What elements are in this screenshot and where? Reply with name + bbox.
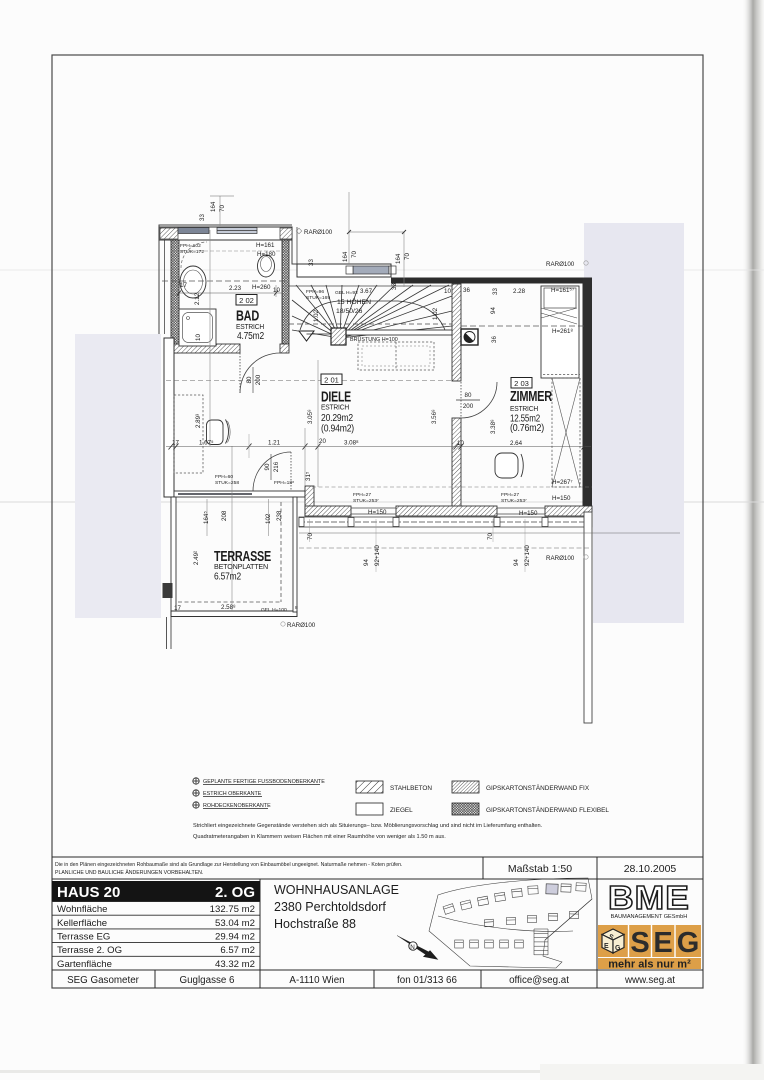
svg-text:www.seg.at: www.seg.at xyxy=(624,975,675,986)
svg-text:102: 102 xyxy=(265,513,272,524)
svg-text:H=150: H=150 xyxy=(519,510,538,517)
svg-text:94: 94 xyxy=(363,559,370,566)
svg-text:fon 01/313 66: fon 01/313 66 xyxy=(397,975,457,986)
svg-text:2.12: 2.12 xyxy=(194,292,201,305)
svg-text:164: 164 xyxy=(395,253,402,264)
svg-text:(0.76m2): (0.76m2) xyxy=(510,423,544,434)
svg-text:H=150: H=150 xyxy=(552,495,571,502)
svg-text:RARØ100: RARØ100 xyxy=(287,622,316,629)
svg-text:3.38⁸: 3.38⁸ xyxy=(490,419,497,434)
svg-text:ESTRICH: ESTRICH xyxy=(236,322,264,331)
svg-text:90: 90 xyxy=(264,463,271,470)
svg-text:ZIMMER: ZIMMER xyxy=(510,389,553,405)
svg-text:94: 94 xyxy=(513,559,520,566)
svg-text:8: 8 xyxy=(295,605,298,611)
svg-text:H=150: H=150 xyxy=(368,509,387,516)
svg-text:2.89³: 2.89³ xyxy=(195,414,202,428)
svg-text:200: 200 xyxy=(255,374,262,385)
svg-text:70: 70 xyxy=(307,533,314,540)
svg-text:FPH=102: FPH=102 xyxy=(180,243,201,249)
svg-text:29.94 m2: 29.94 m2 xyxy=(215,932,255,943)
svg-text:H=161: H=161 xyxy=(256,242,275,249)
svg-text:ROHDECKENOBERKANTE: ROHDECKENOBERKANTE xyxy=(203,803,271,809)
svg-text:92+140: 92+140 xyxy=(524,545,531,566)
svg-text:Strichliert eingezeichnete Geg: Strichliert eingezeichnete Gegenstände v… xyxy=(193,823,543,829)
svg-text:1.02: 1.02 xyxy=(432,307,439,320)
svg-text:70: 70 xyxy=(487,533,494,540)
svg-text:S: S xyxy=(630,927,649,959)
svg-text:Hochstraße 88: Hochstraße 88 xyxy=(274,917,356,931)
svg-text:STUK=253⁷: STUK=253⁷ xyxy=(353,498,379,504)
svg-text:17: 17 xyxy=(172,440,179,447)
svg-text:H=261⁸: H=261⁸ xyxy=(552,328,573,335)
svg-text:ESTRICH OBERKANTE: ESTRICH OBERKANTE xyxy=(203,791,262,797)
svg-text:164: 164 xyxy=(342,251,349,262)
svg-text:1.02: 1.02 xyxy=(313,309,320,322)
svg-text:20.29m2: 20.29m2 xyxy=(321,413,354,424)
svg-text:ZIEGEL: ZIEGEL xyxy=(390,807,413,814)
svg-text:2.23: 2.23 xyxy=(229,285,242,292)
svg-text:Maßstab 1:50: Maßstab 1:50 xyxy=(508,863,572,875)
svg-text:FPH=27: FPH=27 xyxy=(353,492,371,498)
svg-text:H=180: H=180 xyxy=(257,251,276,258)
svg-text:WOHNHAUSANLAGE: WOHNHAUSANLAGE xyxy=(274,883,399,897)
svg-text:10: 10 xyxy=(457,440,464,447)
svg-text:GEL.H=100: GEL.H=100 xyxy=(261,607,287,613)
svg-text:GIPSKARTONSTÄNDERWAND FLEXIBE: GIPSKARTONSTÄNDERWAND FLEXIBEL xyxy=(486,806,609,814)
svg-text:1.67⁵: 1.67⁵ xyxy=(199,440,214,447)
svg-text:Die in den Plänen eingezeichne: Die in den Plänen eingezeichneten Rohbau… xyxy=(55,862,403,868)
svg-text:RARØ100: RARØ100 xyxy=(546,555,575,562)
svg-text:E: E xyxy=(653,927,672,959)
svg-text:92+140: 92+140 xyxy=(374,545,381,566)
svg-text:RARØ100: RARØ100 xyxy=(546,261,575,268)
svg-text:3.05⁸: 3.05⁸ xyxy=(307,409,314,424)
svg-text:A-1110 Wien: A-1110 Wien xyxy=(289,975,344,986)
svg-text:17: 17 xyxy=(174,605,181,612)
svg-text:2380 Perchtoldsdorf: 2380 Perchtoldsdorf xyxy=(274,900,386,914)
svg-text:GEL H=92: GEL H=92 xyxy=(335,290,358,296)
svg-text:STUK=258: STUK=258 xyxy=(215,480,239,486)
svg-text:2.64: 2.64 xyxy=(510,440,523,447)
svg-text:BAUMANAGEMENT GESmbH: BAUMANAGEMENT GESmbH xyxy=(611,914,688,920)
svg-text:H=260: H=260 xyxy=(252,284,271,291)
svg-text:Terrasse 2. OG: Terrasse 2. OG xyxy=(57,945,122,956)
svg-text:FPH=96: FPH=96 xyxy=(306,289,324,295)
svg-text:ESTRICH: ESTRICH xyxy=(321,403,349,412)
svg-text:33: 33 xyxy=(308,259,315,266)
svg-text:1.21: 1.21 xyxy=(268,440,281,447)
svg-text:G: G xyxy=(615,945,621,952)
svg-text:3.08⁸: 3.08⁸ xyxy=(344,440,359,447)
svg-text:FPH=18⁸: FPH=18⁸ xyxy=(274,480,294,486)
svg-text:Quadratmeterangaben in Klammer: Quadratmeterangaben in Klammern weisen F… xyxy=(193,834,446,840)
svg-text:17: 17 xyxy=(180,282,187,289)
svg-text:10: 10 xyxy=(195,334,202,341)
svg-text:3.56⁸: 3.56⁸ xyxy=(431,409,438,424)
svg-text:70: 70 xyxy=(219,205,226,212)
svg-text:2. OG: 2. OG xyxy=(215,884,255,901)
svg-text:6.57 m2: 6.57 m2 xyxy=(220,945,255,956)
svg-text:mehr als nur m²: mehr als nur m² xyxy=(608,959,691,971)
svg-text:200: 200 xyxy=(463,403,474,410)
svg-text:Wohnfläche: Wohnfläche xyxy=(57,904,108,915)
svg-text:80: 80 xyxy=(246,376,253,383)
svg-text:Gartenfläche: Gartenfläche xyxy=(57,959,112,970)
svg-text:N: N xyxy=(410,944,415,951)
svg-text:6.57m2: 6.57m2 xyxy=(214,572,242,583)
svg-text:70: 70 xyxy=(351,251,358,258)
svg-text:31⁵: 31⁵ xyxy=(305,471,312,481)
svg-text:(0.94m2): (0.94m2) xyxy=(321,424,354,435)
svg-text:H=267⁷: H=267⁷ xyxy=(552,479,573,486)
svg-text:94: 94 xyxy=(490,307,497,314)
svg-text:43.32 m2: 43.32 m2 xyxy=(215,959,255,970)
svg-text:GEPLANTE FERTIGE FUSSBODENOBER: GEPLANTE FERTIGE FUSSBODENOBERKANTE xyxy=(203,779,325,785)
svg-text:2 03: 2 03 xyxy=(514,379,529,388)
svg-text:20: 20 xyxy=(319,438,326,445)
svg-text:33: 33 xyxy=(199,214,206,221)
svg-text:208: 208 xyxy=(221,510,228,521)
svg-text:STUK=172: STUK=172 xyxy=(180,249,204,255)
svg-text:164⁵: 164⁵ xyxy=(203,511,210,524)
svg-text:STUK=169: STUK=169 xyxy=(306,295,330,301)
svg-text:70: 70 xyxy=(404,253,411,260)
svg-text:18/50/26: 18/50/26 xyxy=(336,308,363,315)
svg-text:2.58⁸: 2.58⁸ xyxy=(221,604,236,611)
svg-text:PLANLICHE UND BAULICHE ÄNDERUN: PLANLICHE UND BAULICHE ÄNDERUNGEN VORBEH… xyxy=(55,869,203,876)
svg-text:office@seg.at: office@seg.at xyxy=(509,975,569,986)
svg-text:2.49²: 2.49² xyxy=(193,551,200,565)
svg-text:2 01: 2 01 xyxy=(324,375,339,384)
svg-text:BME: BME xyxy=(608,879,690,916)
svg-text:28.10.2005: 28.10.2005 xyxy=(624,863,677,875)
svg-text:STAHLBETON: STAHLBETON xyxy=(390,785,432,792)
svg-text:H=161⁵⁷: H=161⁵⁷ xyxy=(551,287,574,294)
svg-text:Guglgasse 6: Guglgasse 6 xyxy=(179,975,235,986)
svg-text:238: 238 xyxy=(276,510,283,521)
svg-text:FPH=27: FPH=27 xyxy=(501,492,519,498)
svg-text:BETONPLATTEN: BETONPLATTEN xyxy=(214,562,268,571)
svg-text:10: 10 xyxy=(273,287,280,294)
svg-text:80: 80 xyxy=(465,392,472,399)
svg-text:33: 33 xyxy=(492,288,499,295)
svg-text:E: E xyxy=(604,943,609,950)
svg-text:G: G xyxy=(677,927,700,959)
svg-text:ESTRICH: ESTRICH xyxy=(510,404,538,413)
svg-text:2.28: 2.28 xyxy=(513,288,526,295)
svg-text:2 02: 2 02 xyxy=(239,296,254,305)
svg-text:53.04 m2: 53.04 m2 xyxy=(215,918,255,929)
svg-text:Terrasse EG: Terrasse EG xyxy=(57,932,110,943)
svg-text:15 HÖHEN: 15 HÖHEN xyxy=(337,298,371,306)
svg-text:33: 33 xyxy=(391,283,398,290)
svg-text:36: 36 xyxy=(463,287,470,294)
svg-text:HAUS 20: HAUS 20 xyxy=(57,884,120,901)
svg-text:132.75 m2: 132.75 m2 xyxy=(210,904,255,915)
svg-text:FPH=60: FPH=60 xyxy=(215,474,233,480)
svg-text:GIPSKARTONSTÄNDERWAND FIX: GIPSKARTONSTÄNDERWAND FIX xyxy=(486,784,590,792)
svg-text:216: 216 xyxy=(273,461,280,472)
svg-text:4.75m2: 4.75m2 xyxy=(237,331,265,342)
svg-text:STUK=253⁷: STUK=253⁷ xyxy=(501,498,527,504)
svg-text:3.67: 3.67 xyxy=(360,288,373,295)
svg-text:10: 10 xyxy=(444,288,451,295)
svg-text:36: 36 xyxy=(491,336,498,343)
svg-text:RARØ100: RARØ100 xyxy=(304,229,333,236)
svg-text:164: 164 xyxy=(210,201,217,212)
svg-text:SEG Gasometer: SEG Gasometer xyxy=(67,975,140,986)
svg-text:Kellerfläche: Kellerfläche xyxy=(57,918,107,929)
